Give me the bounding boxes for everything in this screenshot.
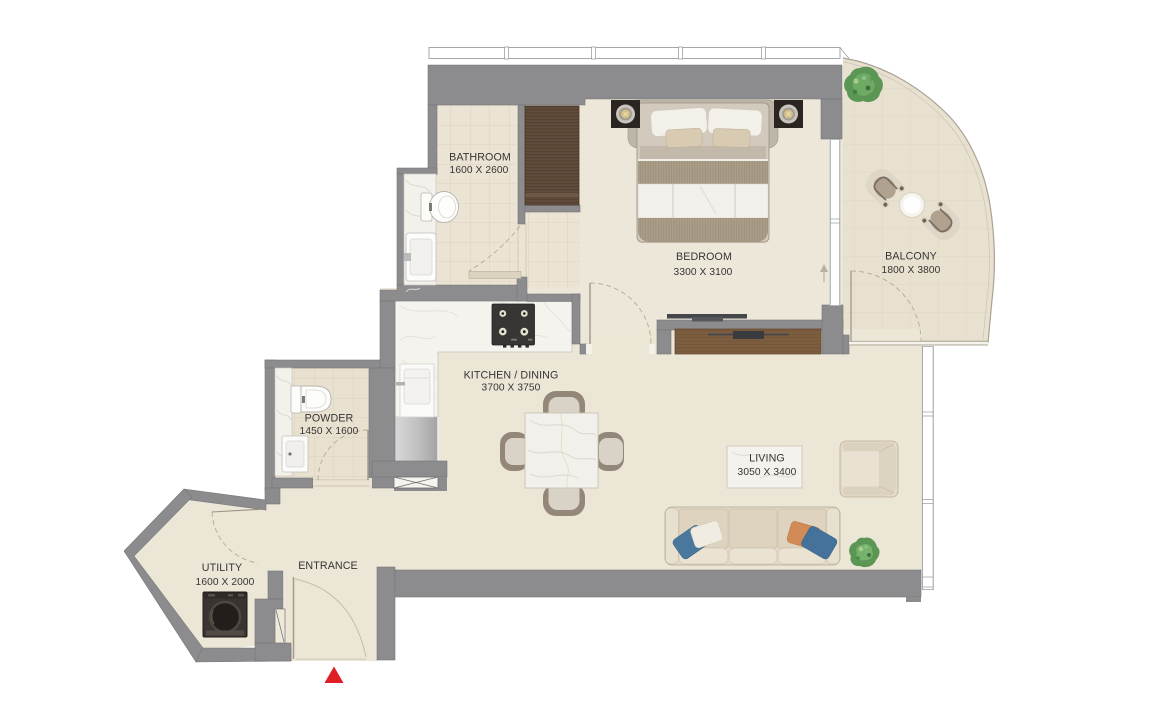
svg-text:BALCONY: BALCONY [885,251,937,263]
svg-text:BATHROOM: BATHROOM [449,152,511,164]
svg-text:1600 X 2600: 1600 X 2600 [450,165,509,176]
svg-text:LIVING: LIVING [749,453,785,465]
svg-text:1800 X 3800: 1800 X 3800 [882,265,941,276]
svg-text:1450 X 1600: 1450 X 1600 [300,426,359,437]
svg-text:KITCHEN / DINING: KITCHEN / DINING [464,370,559,382]
svg-text:3300 X 3100: 3300 X 3100 [674,267,733,278]
svg-text:1600 X 2000: 1600 X 2000 [196,577,255,588]
svg-text:ENTRANCE: ENTRANCE [298,560,358,572]
svg-text:POWDER: POWDER [305,413,354,425]
svg-text:3700 X 3750: 3700 X 3750 [482,383,541,394]
svg-text:BEDROOM: BEDROOM [676,251,732,263]
svg-text:3050 X 3400: 3050 X 3400 [738,467,797,478]
svg-text:UTILITY: UTILITY [202,562,243,574]
